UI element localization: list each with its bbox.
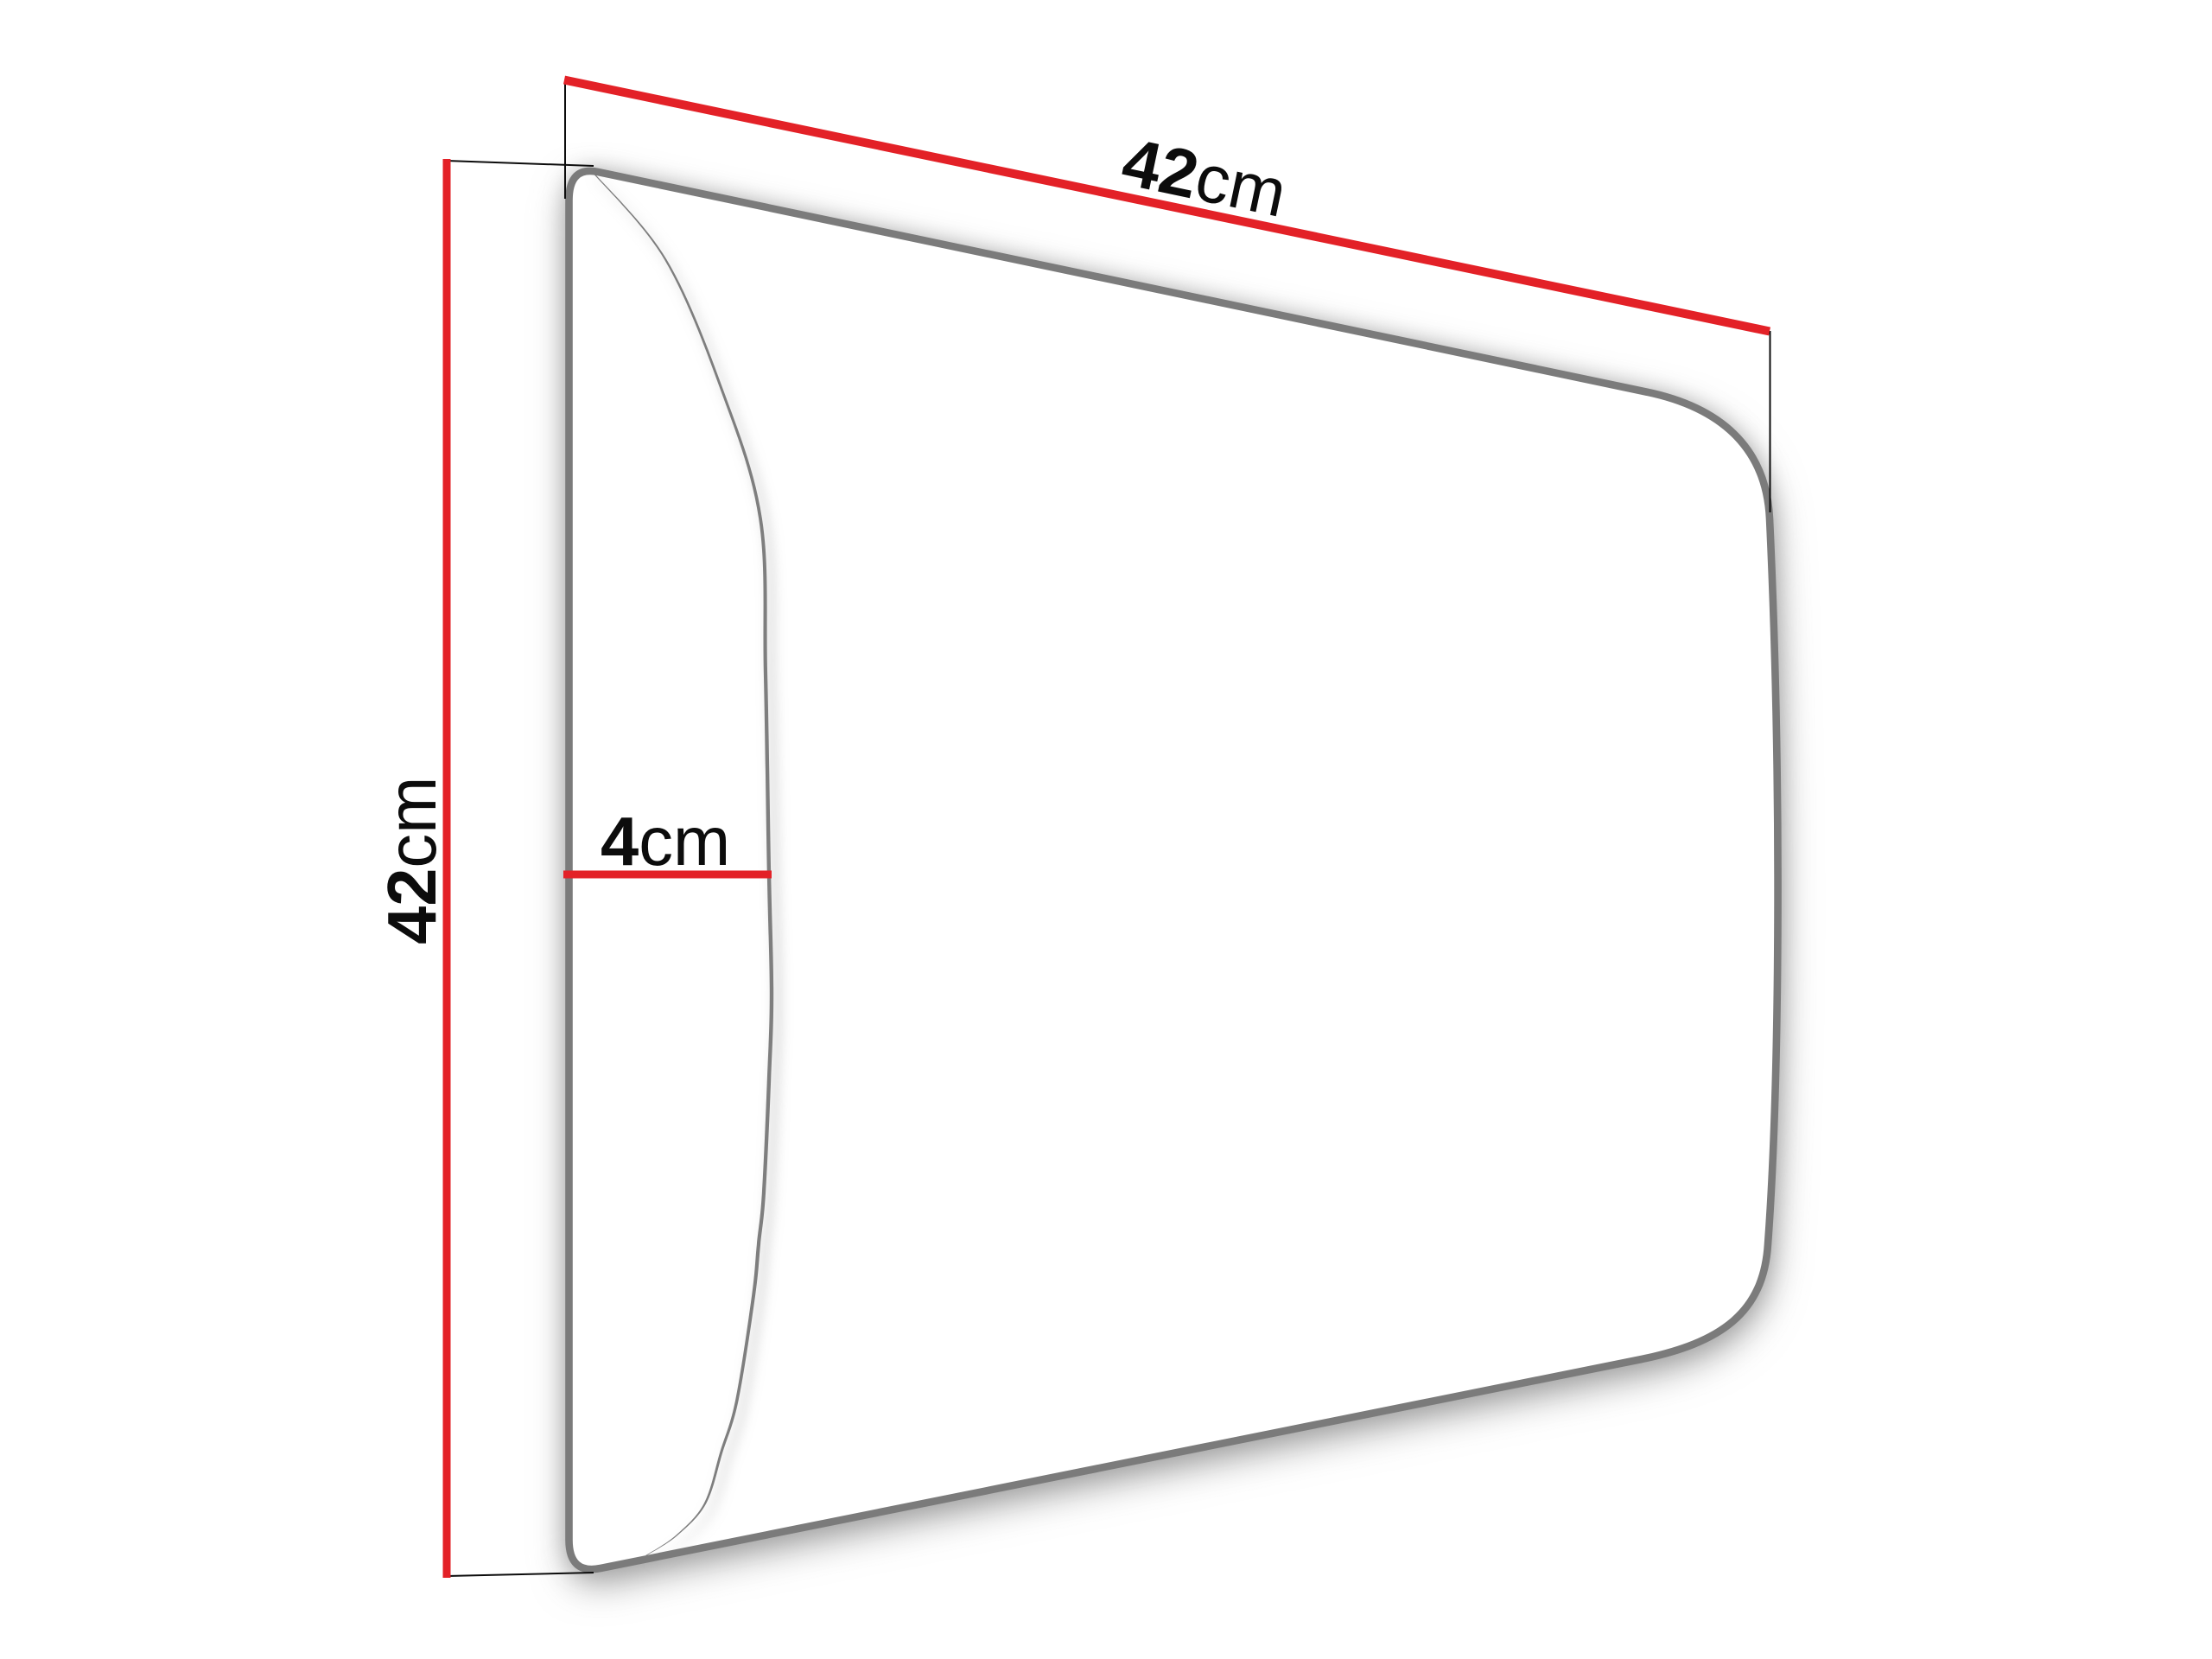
svg-text:4cm: 4cm	[601, 803, 730, 880]
svg-text:42cm: 42cm	[373, 777, 450, 944]
svg-text:42cm: 42cm	[1116, 124, 1293, 232]
